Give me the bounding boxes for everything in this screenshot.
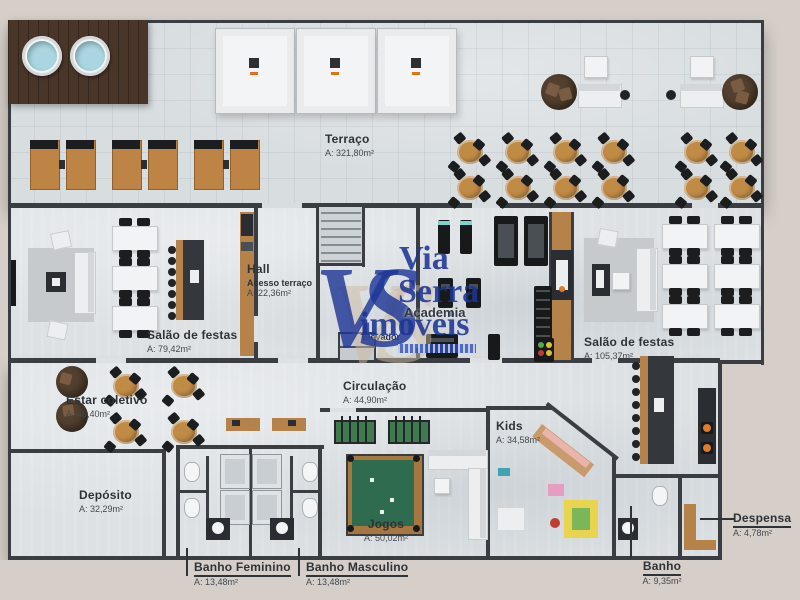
room-name: Circulação bbox=[343, 380, 406, 393]
shower-stall bbox=[252, 454, 282, 489]
room-label-banho-masculino: Banho Masculino A: 13,48m² bbox=[306, 558, 408, 588]
room-area: A: 4,78m² bbox=[733, 528, 791, 538]
pergola-canopy bbox=[296, 28, 376, 114]
room-area: A: 105,37m² bbox=[584, 351, 674, 361]
wall-segment bbox=[612, 456, 616, 560]
wall-segment bbox=[292, 490, 320, 493]
table-decor bbox=[654, 398, 664, 412]
room-name: Terraço bbox=[325, 133, 370, 146]
chair bbox=[687, 288, 700, 296]
bar-stool bbox=[168, 301, 176, 309]
sofa-back bbox=[428, 450, 486, 456]
room-area: A: 13,48m² bbox=[306, 577, 408, 587]
lounger-pillow bbox=[30, 140, 58, 149]
bar-stool bbox=[632, 440, 640, 448]
chair bbox=[739, 328, 752, 336]
dining-table bbox=[112, 266, 158, 291]
room-name: Elevador bbox=[362, 332, 400, 342]
dining-table bbox=[714, 264, 760, 289]
lounger-pillow bbox=[112, 140, 140, 149]
canopy-center bbox=[411, 58, 421, 68]
chair bbox=[137, 258, 150, 266]
side-table bbox=[59, 160, 65, 169]
sofa-back bbox=[480, 468, 486, 538]
chair bbox=[137, 250, 150, 258]
room-label-estar-coletivo: Estar coletivo A: 46,40m² bbox=[66, 391, 148, 419]
cabinet bbox=[288, 420, 296, 426]
chair bbox=[721, 288, 734, 296]
chair bbox=[721, 216, 734, 224]
room-name: Salão de festas bbox=[147, 329, 237, 342]
label-leader-line bbox=[186, 548, 188, 576]
room-label-banho: Banho A: 9,35m² bbox=[630, 557, 694, 587]
bar-stool bbox=[632, 375, 640, 383]
wall-segment bbox=[8, 449, 166, 453]
bar-stool bbox=[632, 427, 640, 435]
wall-segment bbox=[8, 203, 764, 208]
label-leader-line bbox=[298, 548, 300, 576]
gym-equipment-detail bbox=[536, 299, 550, 301]
sink bbox=[212, 522, 224, 534]
room-name: Hall bbox=[247, 263, 270, 276]
chair bbox=[669, 256, 682, 264]
foosball-rod bbox=[395, 416, 397, 443]
label-leader-line bbox=[630, 506, 632, 558]
room-label-kids: Kids A: 34,58m² bbox=[496, 417, 540, 445]
bar-stool bbox=[620, 90, 630, 100]
room-name: Despensa bbox=[733, 512, 791, 528]
room-label-deposito: Depósito A: 32,29m² bbox=[79, 486, 132, 514]
bar-stool bbox=[632, 453, 640, 461]
canopy-center bbox=[249, 58, 259, 68]
bike-handle bbox=[438, 221, 450, 225]
room-area: A: 9,35m² bbox=[630, 576, 694, 586]
door-opening bbox=[692, 203, 718, 208]
chair bbox=[669, 248, 682, 256]
chair bbox=[669, 216, 682, 224]
wood-counter bbox=[684, 540, 716, 550]
stair-tread bbox=[321, 220, 361, 222]
foosball-rod bbox=[357, 416, 359, 443]
sofa-back bbox=[650, 248, 656, 310]
weight-plate-yellow bbox=[546, 342, 552, 348]
room-area: A: 321,80m² bbox=[325, 148, 374, 158]
wall-segment bbox=[318, 445, 322, 560]
gym-equipment-detail bbox=[498, 224, 514, 258]
lounger-pillow bbox=[66, 140, 94, 149]
wall-segment bbox=[718, 360, 722, 560]
room-area: A: 13,48m² bbox=[194, 577, 291, 587]
room-label-circulacao: Circulação A: 44,90m² bbox=[343, 377, 406, 405]
door-opening bbox=[416, 322, 420, 348]
sofa-back bbox=[578, 84, 620, 91]
gym-equipment-detail bbox=[469, 284, 478, 289]
flame-burner bbox=[703, 424, 711, 432]
gym-equipment bbox=[466, 278, 481, 308]
wood-counter bbox=[640, 356, 648, 464]
toilet bbox=[184, 498, 200, 518]
chair bbox=[119, 250, 132, 258]
canopy-accent bbox=[250, 72, 258, 75]
chair bbox=[687, 248, 700, 256]
floor-plan: Terraço A: 321,80m² Hall Acesso terraço … bbox=[0, 0, 800, 600]
wall-segment bbox=[362, 205, 365, 267]
wood-counter bbox=[176, 240, 183, 320]
door-opening bbox=[96, 358, 126, 363]
armchair bbox=[597, 228, 619, 248]
toy bbox=[498, 468, 510, 476]
door-opening bbox=[278, 358, 308, 363]
gym-equipment-detail bbox=[536, 326, 550, 328]
door-opening bbox=[254, 316, 258, 342]
bar-stool bbox=[168, 246, 176, 254]
dining-table bbox=[662, 264, 708, 289]
stair-tread bbox=[321, 244, 361, 246]
foosball-rod bbox=[349, 416, 351, 443]
gym-equipment-detail bbox=[340, 346, 374, 348]
wall-segment bbox=[678, 474, 682, 560]
table-decor bbox=[596, 270, 604, 288]
table-decor bbox=[52, 278, 60, 286]
hot-tub-water bbox=[27, 41, 57, 71]
dining-table bbox=[690, 56, 714, 78]
door-opening bbox=[262, 203, 302, 208]
pool-pocket bbox=[347, 455, 354, 462]
room-name: Kids bbox=[496, 420, 523, 433]
chair bbox=[137, 290, 150, 298]
label-leader-line bbox=[700, 518, 734, 520]
lounger-pillow bbox=[194, 140, 222, 149]
room-label-jogos: Jogos A: 50,02m² bbox=[356, 515, 416, 543]
gym-equipment bbox=[460, 220, 472, 254]
bar-stool bbox=[666, 90, 676, 100]
stair-tread bbox=[321, 236, 361, 238]
dining-table bbox=[714, 304, 760, 329]
table-decor bbox=[190, 270, 199, 283]
chair bbox=[119, 218, 132, 226]
chair bbox=[739, 256, 752, 264]
gym-equipment-detail bbox=[536, 317, 550, 319]
room-area: A: 32,29m² bbox=[79, 504, 132, 514]
bike-handle bbox=[460, 221, 472, 225]
room-area: A: 79,42m² bbox=[147, 344, 237, 354]
sink bbox=[622, 522, 634, 534]
chair bbox=[739, 248, 752, 256]
foosball-rod bbox=[341, 416, 343, 443]
foosball-rod bbox=[365, 416, 367, 443]
door-opening bbox=[330, 408, 356, 412]
chair bbox=[669, 288, 682, 296]
shower-stall bbox=[220, 454, 250, 489]
pergola-canopy bbox=[377, 28, 457, 114]
toy bbox=[548, 484, 564, 496]
room-name: Academia bbox=[404, 305, 465, 320]
room-area: A: 50,02m² bbox=[356, 533, 416, 543]
wall-segment bbox=[176, 445, 180, 560]
bar-stool bbox=[632, 414, 640, 422]
wall-segment bbox=[722, 360, 764, 364]
table-decor bbox=[370, 478, 374, 482]
gym-equipment bbox=[438, 220, 450, 254]
wall-segment bbox=[612, 474, 722, 478]
gym-equipment bbox=[534, 286, 552, 342]
gym-equipment-detail bbox=[241, 242, 253, 251]
wall-segment bbox=[180, 490, 208, 493]
gym-equipment-detail bbox=[528, 224, 544, 258]
flame-burner bbox=[703, 444, 711, 452]
stair-tread bbox=[321, 212, 361, 214]
room-label-hall: Hall Acesso terraço A: 22,36m² bbox=[247, 260, 312, 298]
sofa-back bbox=[680, 84, 722, 91]
chair bbox=[721, 248, 734, 256]
foosball-rod bbox=[419, 416, 421, 443]
chair bbox=[119, 330, 132, 338]
pergola-canopy bbox=[215, 28, 295, 114]
dining-table bbox=[434, 478, 450, 494]
bar-stool bbox=[168, 279, 176, 287]
room-label-salao-festas-1: Salão de festas A: 79,42m² bbox=[147, 326, 237, 354]
room-name: Banho bbox=[643, 560, 681, 576]
sink bbox=[276, 522, 288, 534]
weight-plate-red bbox=[550, 518, 560, 528]
gym-equipment-detail bbox=[441, 284, 450, 289]
gym-equipment-detail bbox=[536, 335, 550, 337]
canopy-accent bbox=[331, 72, 339, 75]
toilet bbox=[302, 498, 318, 518]
bar-stool bbox=[632, 362, 640, 370]
chair bbox=[739, 288, 752, 296]
dining-table bbox=[584, 56, 608, 78]
lounger-pillow bbox=[148, 140, 176, 149]
chair bbox=[119, 258, 132, 266]
chair bbox=[669, 296, 682, 304]
room-area: A: 22,36m² bbox=[247, 288, 312, 298]
chair bbox=[137, 298, 150, 306]
dining-table bbox=[662, 304, 708, 329]
chair bbox=[687, 256, 700, 264]
dining-table bbox=[714, 224, 760, 249]
hot-tub-water bbox=[75, 41, 105, 71]
chair bbox=[119, 290, 132, 298]
gym-equipment bbox=[488, 334, 500, 360]
chair bbox=[739, 216, 752, 224]
toilet bbox=[652, 486, 668, 506]
bar-stool bbox=[632, 401, 640, 409]
side-table bbox=[141, 160, 147, 169]
foosball-rod bbox=[411, 416, 413, 443]
gym-equipment bbox=[438, 278, 453, 308]
chair bbox=[739, 296, 752, 304]
table-decor bbox=[390, 498, 394, 502]
canopy-center bbox=[330, 58, 340, 68]
room-name: Estar coletivo bbox=[66, 394, 148, 407]
room-area: A: 34,58m² bbox=[496, 435, 540, 445]
gym-equipment-detail bbox=[430, 338, 454, 342]
chair bbox=[687, 216, 700, 224]
chair bbox=[721, 256, 734, 264]
toilet bbox=[302, 462, 318, 482]
side-table bbox=[223, 160, 229, 169]
room-subtitle: Acesso terraço bbox=[247, 278, 312, 288]
room-area: A: 46,40m² bbox=[66, 409, 148, 419]
room-label-elevador: Elevador bbox=[362, 332, 400, 342]
room-label-salao-festas-2: Salão de festas A: 105,37m² bbox=[584, 333, 674, 361]
cabinet bbox=[232, 420, 240, 426]
wall-segment bbox=[319, 263, 365, 266]
stair-tread bbox=[321, 260, 361, 262]
cabinet bbox=[241, 214, 253, 236]
chair bbox=[137, 218, 150, 226]
room-label-banho-feminino: Banho Feminino A: 13,48m² bbox=[194, 558, 291, 588]
gym-equipment-detail bbox=[536, 290, 550, 292]
chair bbox=[721, 328, 734, 336]
flame-burner bbox=[559, 286, 565, 292]
bar-stool bbox=[168, 257, 176, 265]
room-name: Banho Feminino bbox=[194, 561, 291, 577]
dining-table bbox=[612, 272, 630, 290]
bar-stool bbox=[168, 312, 176, 320]
pool-pocket bbox=[413, 455, 420, 462]
wall-segment bbox=[486, 406, 552, 410]
chair bbox=[721, 296, 734, 304]
foosball-rod bbox=[403, 416, 405, 443]
pool-pocket bbox=[347, 525, 354, 532]
bar-stool bbox=[632, 388, 640, 396]
chair bbox=[687, 296, 700, 304]
room-label-terraco: Terraço A: 321,80m² bbox=[325, 130, 374, 158]
wall-segment bbox=[761, 20, 764, 365]
table-decor bbox=[380, 510, 384, 514]
dining-table bbox=[662, 224, 708, 249]
weight-plate-yellow bbox=[546, 350, 552, 356]
canopy-accent bbox=[412, 72, 420, 75]
gym-equipment-detail bbox=[536, 308, 550, 310]
stair-tread bbox=[321, 252, 361, 254]
room-name: Depósito bbox=[79, 489, 132, 502]
table-decor bbox=[498, 508, 524, 530]
chair bbox=[119, 298, 132, 306]
chair bbox=[687, 328, 700, 336]
bar-stool bbox=[168, 290, 176, 298]
room-name: Jogos bbox=[368, 518, 404, 531]
room-label-despensa: Despensa A: 4,78m² bbox=[733, 509, 791, 539]
sofa-back bbox=[88, 252, 94, 312]
stair-tread bbox=[321, 228, 361, 230]
room-label-academia: Academia bbox=[404, 306, 465, 321]
tv-panel bbox=[11, 260, 16, 306]
weight-plate-green bbox=[538, 342, 544, 348]
weight-plate-red bbox=[538, 350, 544, 356]
bar-stool bbox=[168, 268, 176, 276]
play-mat-inner bbox=[572, 508, 590, 530]
armchair bbox=[46, 320, 68, 341]
dining-table bbox=[112, 226, 158, 251]
toilet bbox=[184, 462, 200, 482]
lounger-pillow bbox=[230, 140, 258, 149]
room-name: Banho Masculino bbox=[306, 561, 408, 577]
room-name: Salão de festas bbox=[584, 336, 674, 349]
room-area: A: 44,90m² bbox=[343, 395, 406, 405]
wall-segment bbox=[162, 449, 166, 560]
